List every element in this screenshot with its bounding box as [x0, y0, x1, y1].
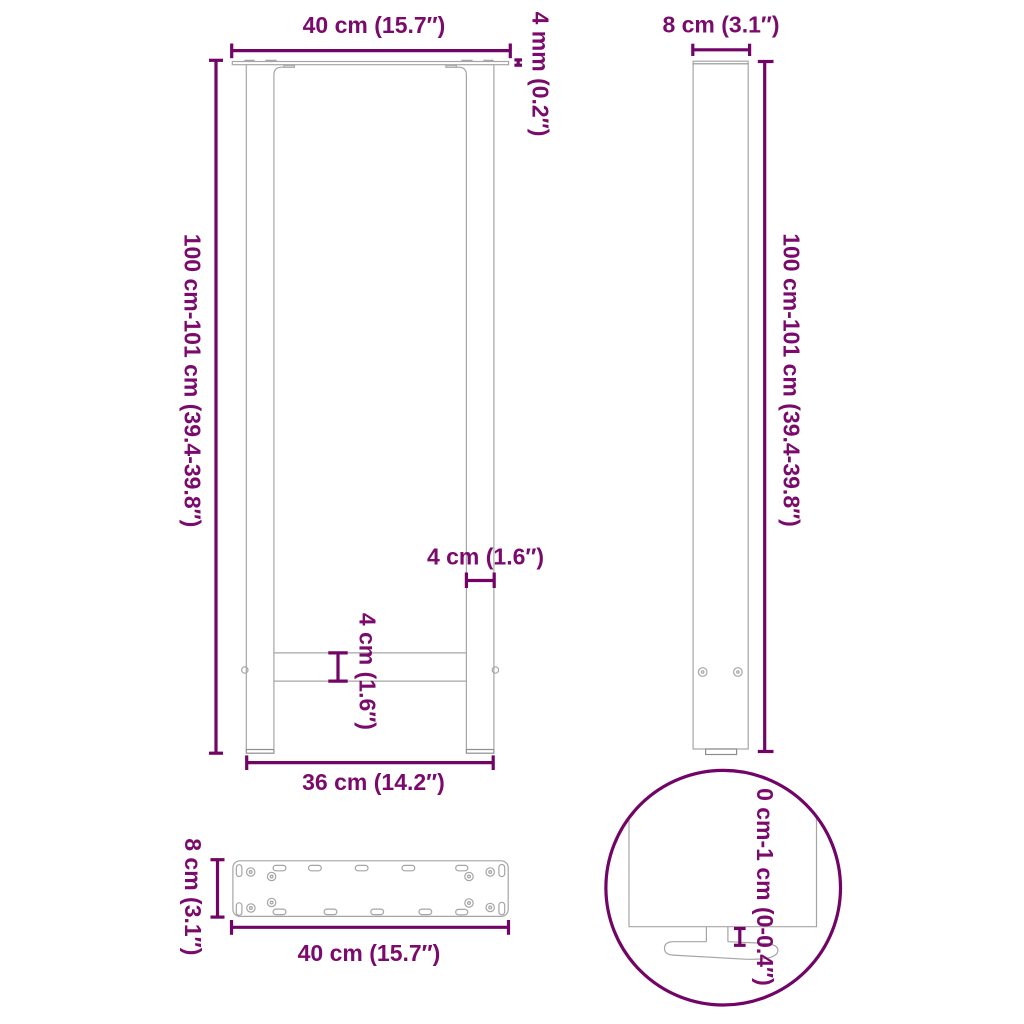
svg-text:4 mm (0.2″): 4 mm (0.2″) [528, 12, 554, 137]
svg-text:36 cm (14.2″): 36 cm (14.2″) [302, 769, 445, 795]
svg-text:40 cm (15.7″): 40 cm (15.7″) [303, 12, 446, 38]
svg-text:100 cm-101 cm (39.4-39.8″): 100 cm-101 cm (39.4-39.8″) [778, 233, 804, 527]
svg-text:8 cm (3.1″): 8 cm (3.1″) [662, 11, 779, 37]
svg-text:0 cm-1 cm (0-0.4″): 0 cm-1 cm (0-0.4″) [752, 788, 778, 986]
svg-text:4 cm (1.6″): 4 cm (1.6″) [427, 543, 544, 569]
svg-text:40 cm (15.7″): 40 cm (15.7″) [298, 940, 441, 966]
svg-text:8 cm (3.1″): 8 cm (3.1″) [180, 838, 206, 955]
svg-text:100 cm-101 cm (39.4-39.8″): 100 cm-101 cm (39.4-39.8″) [180, 234, 206, 528]
svg-text:4 cm (1.6″): 4 cm (1.6″) [354, 613, 380, 730]
